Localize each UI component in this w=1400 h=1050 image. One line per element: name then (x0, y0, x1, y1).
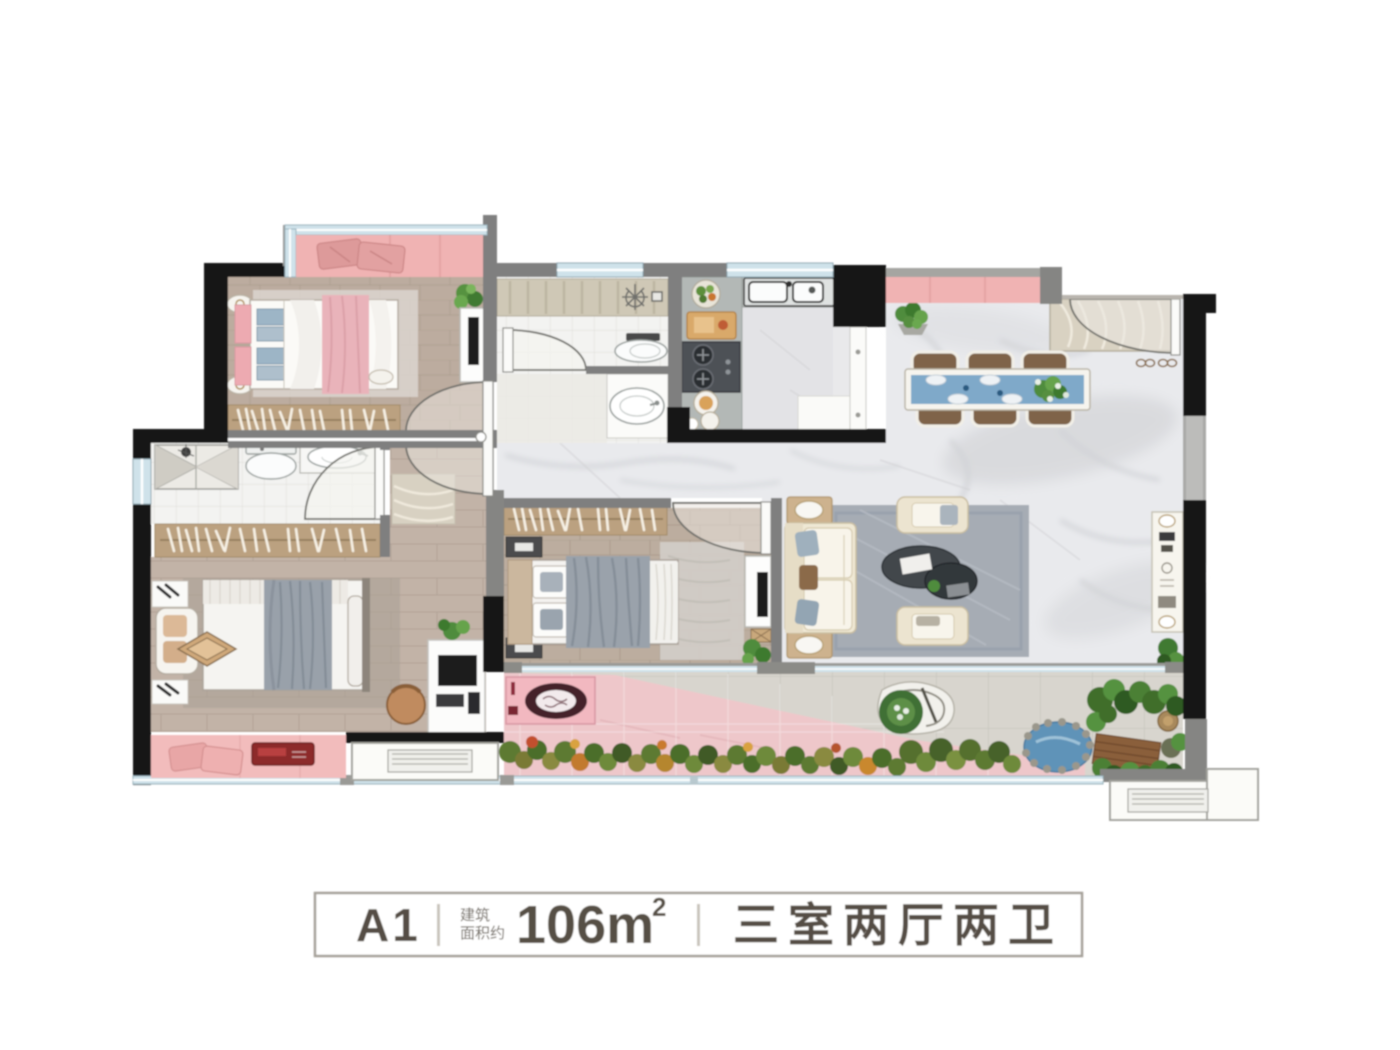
svg-text:面积约: 面积约 (460, 925, 505, 942)
svg-text:106m: 106m (516, 895, 654, 955)
svg-text:三室两厅两卫: 三室两厅两卫 (733, 899, 1063, 951)
svg-text:A1: A1 (356, 899, 421, 951)
svg-text:建筑: 建筑 (460, 907, 490, 924)
svg-text:2: 2 (652, 892, 666, 922)
